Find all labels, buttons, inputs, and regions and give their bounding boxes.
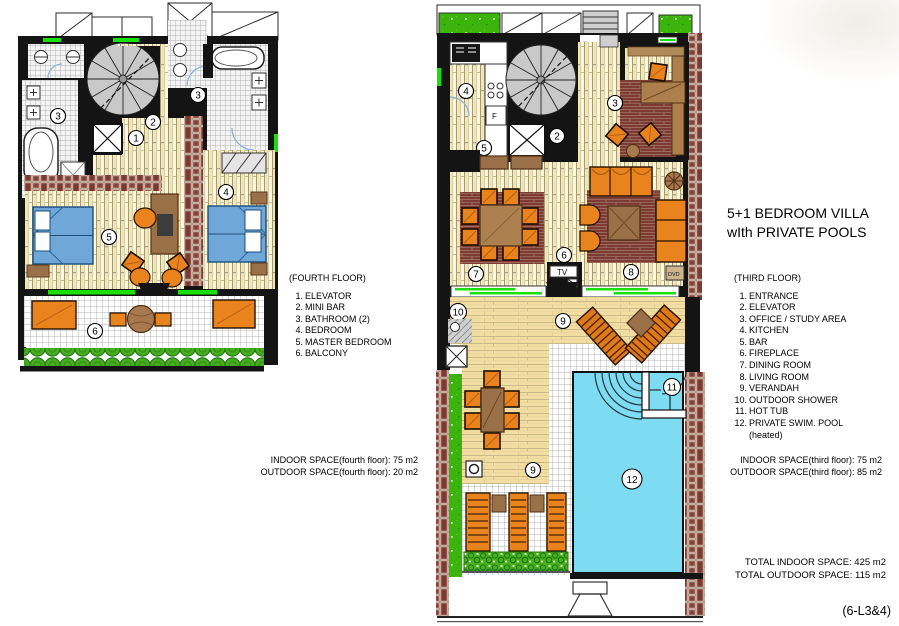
- svg-text:4: 4: [463, 87, 469, 98]
- svg-text:3: 3: [55, 112, 61, 123]
- svg-text:2: 2: [150, 118, 156, 129]
- svg-text:2: 2: [554, 132, 560, 143]
- svg-text:3: 3: [612, 99, 618, 110]
- svg-text:3: 3: [195, 91, 201, 102]
- svg-text:9: 9: [560, 317, 566, 328]
- svg-text:1: 1: [133, 134, 139, 145]
- svg-text:6: 6: [561, 251, 567, 262]
- svg-text:4: 4: [223, 188, 229, 199]
- svg-text:F: F: [492, 112, 497, 121]
- svg-text:6: 6: [92, 327, 98, 338]
- svg-text:8: 8: [628, 268, 634, 279]
- svg-text:10: 10: [452, 308, 464, 319]
- svg-text:11: 11: [667, 383, 678, 394]
- svg-text:5: 5: [106, 233, 112, 244]
- svg-text:9: 9: [530, 466, 536, 477]
- svg-text:TV: TV: [557, 268, 568, 277]
- svg-text:12: 12: [626, 475, 638, 486]
- svg-text:DVD: DVD: [668, 272, 680, 278]
- svg-text:7: 7: [473, 270, 479, 281]
- svg-text:5: 5: [481, 144, 487, 155]
